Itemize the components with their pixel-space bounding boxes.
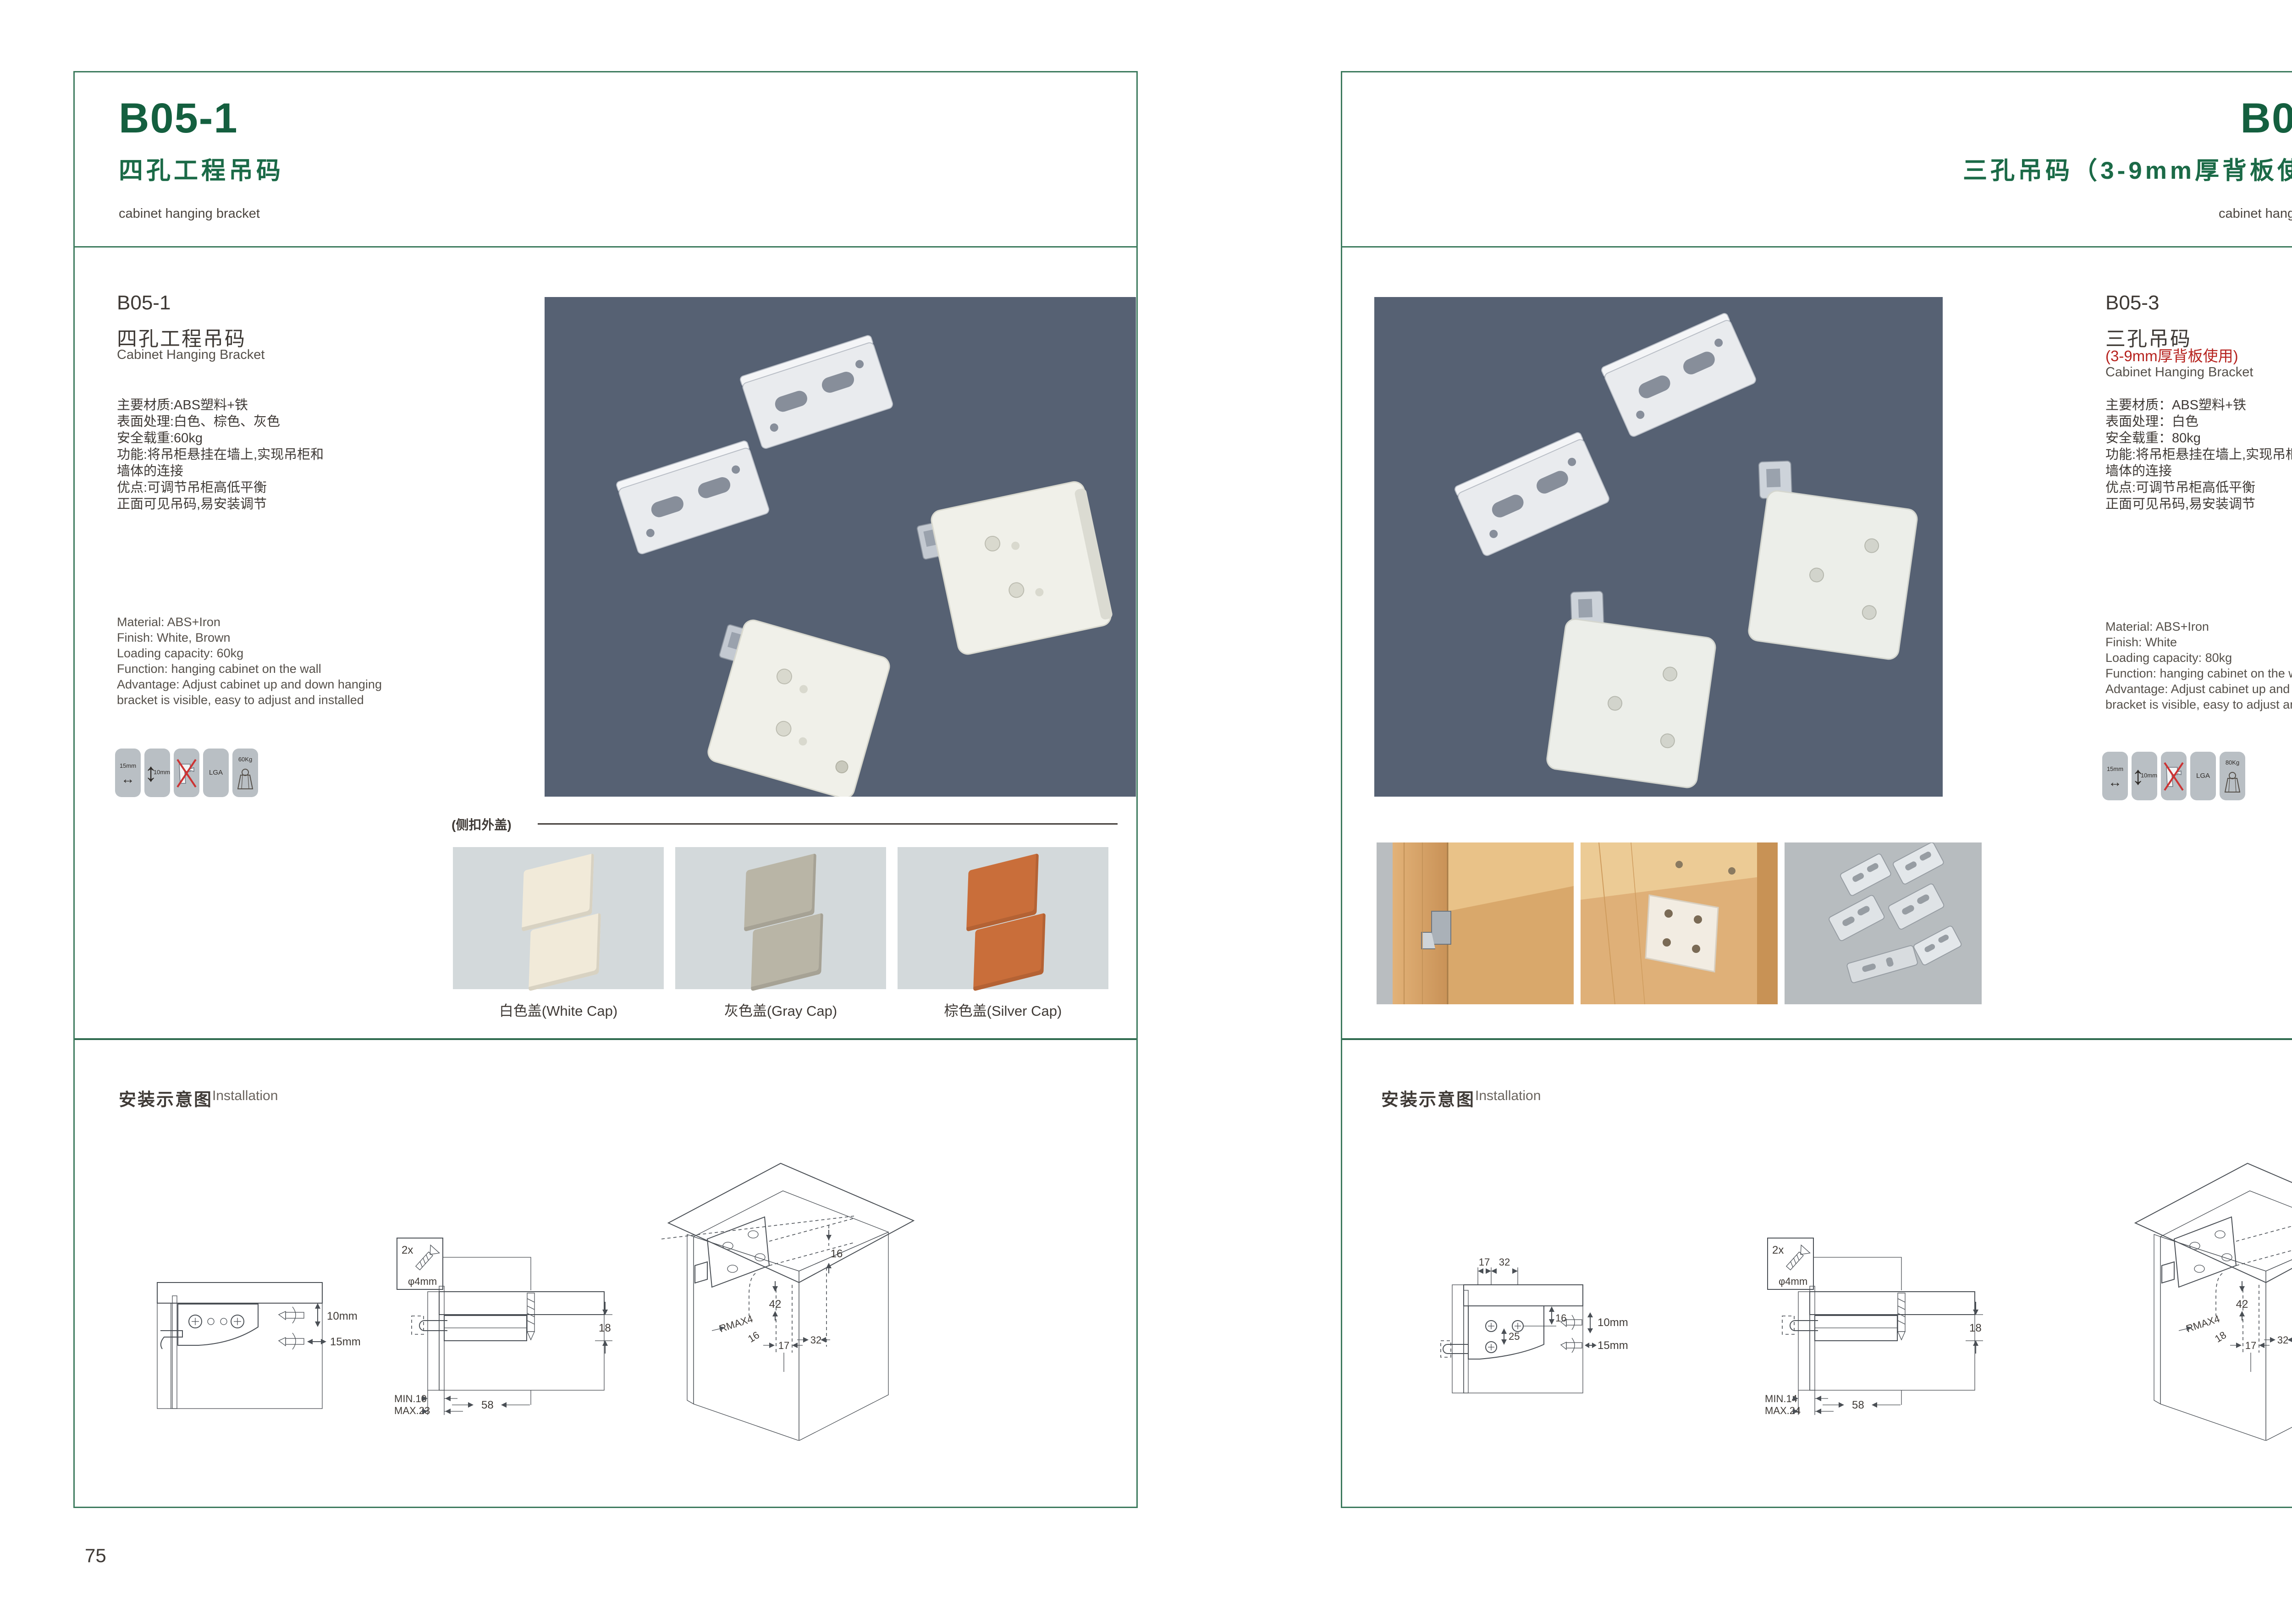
dim-label: 32 (1499, 1257, 1510, 1268)
dim-label: MIN.14 (1765, 1393, 1797, 1404)
spec-line: Advantage: Adjust cabinet up and down ha… (117, 677, 382, 692)
dim-label: 32 (2277, 1334, 2288, 1346)
spec-line: Finish: White (2105, 634, 2292, 650)
dim-label: 10mm (1598, 1316, 1628, 1329)
specs-chinese: 主要材质：ABS塑料+铁 表面处理：白色 安全载重：80kg 功能:将吊柜悬挂在… (2105, 397, 2292, 512)
installation-title-cn: 安装示意图 (1381, 1085, 1475, 1111)
product-code: B05-1 (117, 292, 171, 314)
installation-diagram-isometric: 16 42 RMAX4 18 17 32 (2128, 1147, 2292, 1441)
installation-title-en: Installation (1475, 1088, 1541, 1104)
installation-diagram-section: 10mm 15mm (155, 1276, 370, 1427)
page-left: B05-1 四孔工程吊码 cabinet hanging bracket B05… (73, 71, 1138, 1508)
weight-icon (232, 749, 258, 797)
spec-line: Advantage: Adjust cabinet up and down ha… (2105, 681, 2292, 697)
dim-label: 16 (746, 1329, 761, 1345)
dim-label: 42 (769, 1298, 782, 1310)
spec-line: 主要材质:ABS塑料+铁 (117, 397, 324, 413)
feature-icons-row: 15mm ↔ ↕ 10mm LGA 60Kg (115, 749, 258, 797)
spec-line: 表面处理：白色 (2105, 413, 2292, 430)
height-10mm-icon: ↕ 10mm (2132, 752, 2157, 800)
dim-label: MIN.10 (394, 1393, 427, 1404)
no-drill-icon (174, 749, 199, 797)
dim-label: 17 (1479, 1257, 1490, 1268)
product-code: B05-3 (2105, 292, 2159, 314)
page-right-title-block: B05-3 三孔吊码（3-9mm厚背板使用） cabinet hanging b… (1342, 72, 2292, 248)
cap-caption-gray: 灰色盖(Gray Cap) (675, 999, 886, 1020)
spec-line: 墙体的连接 (117, 463, 324, 479)
page-title-en: cabinet hanging bracket (119, 206, 260, 221)
dim-label: 15mm (330, 1336, 361, 1348)
application-photo-bracket-mounted (1581, 842, 1778, 1004)
drill-crossed-icon (174, 749, 199, 797)
dim-label: RMAX4 (2185, 1313, 2221, 1334)
dim-label: 58 (481, 1399, 494, 1411)
caps-section-rule (538, 823, 1118, 825)
no-drill-icon (2161, 752, 2187, 800)
spec-line: bracket is visible, easy to adjust and i… (117, 692, 382, 708)
product-photo-illustration (545, 297, 1136, 797)
dim-label: 18 (2213, 1329, 2228, 1345)
spec-line: 安全载重:60kg (117, 430, 324, 446)
dim-label: 15mm (1598, 1339, 1628, 1352)
cap-caption-white: 白色盖(White Cap) (453, 999, 664, 1020)
spec-line: Function: hanging cabinet on the wall (2105, 666, 2292, 681)
installation-title-cn: 安装示意图 (119, 1085, 213, 1111)
height-label: 10mm (149, 769, 170, 776)
lga-label: LGA (2190, 772, 2216, 780)
installation-title-en: Installation (212, 1088, 278, 1104)
application-photo-hook-detail (1377, 842, 1574, 1004)
spec-line: 优点:可调节吊柜高低平衡 (2105, 479, 2292, 496)
installation-diagram-section: 2x φ4mm 18 MIN. (393, 1234, 623, 1418)
page-right: B05-3 三孔吊码（3-9mm厚背板使用） cabinet hanging b… (1341, 71, 2292, 1508)
width-15mm-icon: 15mm ↔ (115, 749, 141, 797)
section-divider (1342, 1038, 2292, 1040)
specs-english: Material: ABS+Iron Finish: White Loading… (2105, 619, 2292, 712)
cap-caption-silver: 棕色盖(Silver Cap) (898, 999, 1108, 1020)
page-number-left: 75 (85, 1545, 106, 1567)
specs-chinese: 主要材质:ABS塑料+铁 表面处理:白色、棕色、灰色 安全载重:60kg 功能:… (117, 397, 324, 512)
width-label: 15mm (2102, 765, 2128, 772)
dim-label: 58 (1852, 1399, 1864, 1411)
dim-label: 32 (810, 1334, 821, 1346)
specs-english: Material: ABS+Iron Finish: White, Brown … (117, 614, 382, 708)
dim-label: 10mm (327, 1310, 358, 1322)
width-label: 15mm (115, 762, 141, 769)
weight-icon (2220, 752, 2245, 800)
spec-line: 功能:将吊柜悬挂在墙上,实现吊柜和 (2105, 446, 2292, 463)
screw-dia-label: φ4mm (1779, 1276, 1807, 1287)
page-left-title-block: B05-1 四孔工程吊码 cabinet hanging bracket (75, 72, 1136, 248)
spec-line: 优点:可调节吊柜高低平衡 (117, 479, 324, 496)
page-title-en: cabinet hanging bracket (2219, 206, 2292, 221)
spec-line: Loading capacity: 80kg (2105, 650, 2292, 666)
product-photo-illustration (1374, 297, 1943, 797)
spec-line: Finish: White, Brown (117, 630, 382, 645)
catalog-spread: B05-1 四孔工程吊码 cabinet hanging bracket B05… (0, 0, 2292, 1624)
section-divider (75, 1038, 1136, 1040)
spec-line: 安全载重：80kg (2105, 430, 2292, 446)
drill-crossed-icon (2161, 752, 2187, 800)
feature-icons-row: 15mm ↔ ↕ 10mm LGA 80Kg (2102, 752, 2245, 800)
screw-qty-label: 2x (1772, 1244, 1784, 1256)
product-name-en: Cabinet Hanging Bracket (2105, 365, 2253, 380)
load-capacity-icon: 60Kg (232, 749, 258, 797)
dim-label: 16 (831, 1248, 843, 1260)
spec-line: Material: ABS+Iron (117, 614, 382, 630)
installation-diagram-isometric: 16 42 RMAX4 16 17 32 (661, 1147, 918, 1441)
cap-gray-tile (675, 847, 886, 989)
cap-silver-tile (898, 847, 1108, 989)
caps-section-label: (侧扣外盖) (452, 815, 512, 833)
page-title-cn: 四孔工程吊码 (119, 151, 284, 186)
dim-label: 25 (1509, 1331, 1520, 1342)
product-name-subtitle: (3-9mm厚背板使用) (2105, 344, 2238, 366)
installation-diagram-section: 2x φ4mm 18 MIN. (1764, 1234, 1993, 1418)
lga-cert-icon: LGA (2190, 752, 2216, 800)
height-10mm-icon: ↕ 10mm (144, 749, 170, 797)
horizontal-arrow-icon: ↔ (2102, 776, 2128, 789)
page-title-code: B05-1 (119, 94, 238, 143)
cap-white-tile (453, 847, 664, 989)
spec-line: 正面可见吊码,易安装调节 (2105, 496, 2292, 512)
product-photo (1374, 297, 1943, 797)
spec-line: 功能:将吊柜悬挂在墙上,实现吊柜和 (117, 446, 324, 463)
screw-dia-label: φ4mm (408, 1276, 437, 1287)
load-capacity-icon: 80Kg (2220, 752, 2245, 800)
application-photo-plates-set (1785, 842, 1982, 1004)
dim-label: 18 (599, 1322, 611, 1334)
height-label: 10mm (2136, 772, 2157, 779)
spec-line: Material: ABS+Iron (2105, 619, 2292, 634)
spec-line: 正面可见吊码,易安装调节 (117, 496, 324, 512)
page-title-cn: 三孔吊码（3-9mm厚背板使用） (1963, 151, 2292, 186)
installation-diagram-section: 17 32 16 25 10mm (1436, 1257, 1629, 1413)
spec-line: 墙体的连接 (2105, 463, 2292, 479)
dim-label: 17 (2245, 1340, 2256, 1351)
spec-line: Loading capacity: 60kg (117, 645, 382, 661)
dim-label: 17 (778, 1340, 789, 1351)
spec-line: bracket is visible, easy to adjust and i… (2105, 697, 2292, 712)
dim-label: 18 (1969, 1322, 1982, 1334)
page-title-code: B05-3 (2240, 94, 2292, 143)
product-name-en: Cabinet Hanging Bracket (117, 347, 264, 363)
horizontal-arrow-icon: ↔ (115, 772, 141, 786)
dim-label: RMAX4 (718, 1313, 755, 1334)
product-photo (545, 297, 1136, 797)
dim-label: 42 (2236, 1298, 2248, 1310)
spec-line: 表面处理:白色、棕色、灰色 (117, 413, 324, 430)
lga-cert-icon: LGA (203, 749, 229, 797)
spec-line: Function: hanging cabinet on the wall (117, 661, 382, 677)
width-15mm-icon: 15mm ↔ (2102, 752, 2128, 800)
screw-qty-label: 2x (402, 1244, 413, 1256)
spec-line: 主要材质：ABS塑料+铁 (2105, 397, 2292, 413)
lga-label: LGA (203, 769, 229, 776)
